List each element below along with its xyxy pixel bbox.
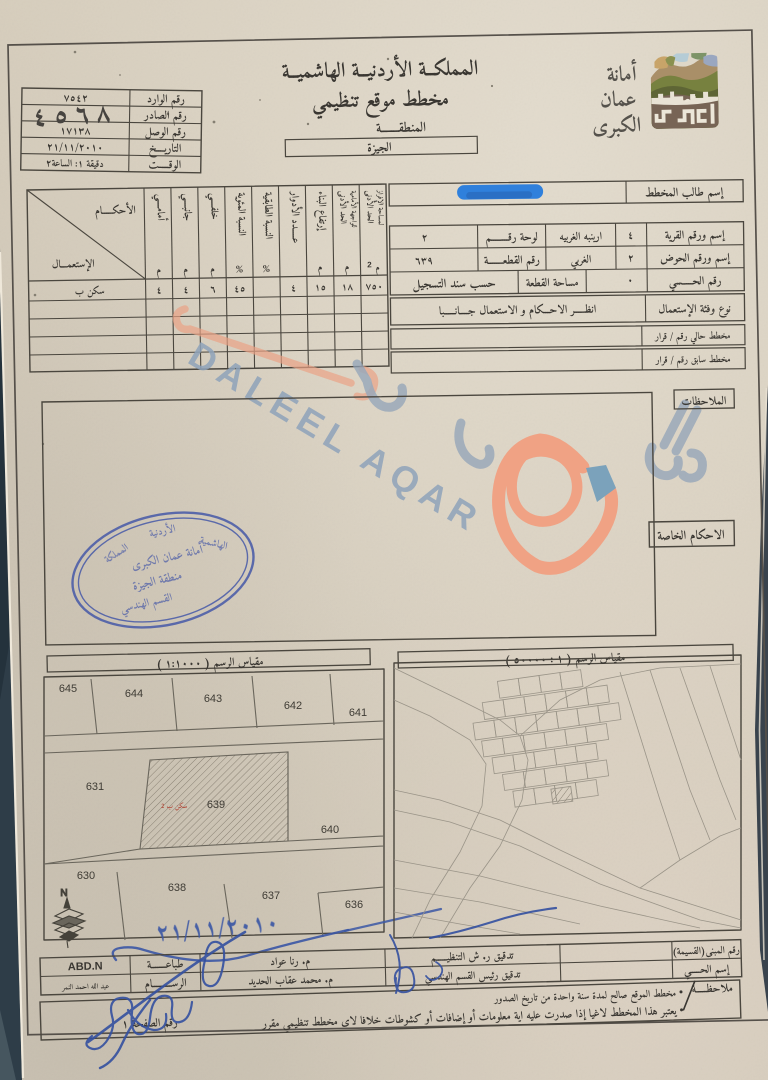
svg-text:637: 637: [262, 890, 280, 902]
svg-text:643: 643: [204, 693, 222, 705]
svg-text:645: 645: [59, 683, 77, 695]
svg-text:644: 644: [125, 688, 143, 700]
svg-text:N: N: [60, 888, 67, 899]
svg-text:630: 630: [77, 870, 95, 882]
svg-text:631: 631: [86, 781, 104, 793]
svg-text:640: 640: [321, 824, 339, 836]
svg-text:641: 641: [349, 707, 367, 719]
svg-text:636: 636: [345, 899, 363, 911]
svg-text:642: 642: [284, 700, 302, 712]
svg-text:2: 2: [367, 260, 372, 269]
svg-text:639: 639: [207, 799, 225, 811]
svg-text:638: 638: [168, 882, 186, 894]
svg-text:ABD.N: ABD.N: [68, 960, 103, 973]
